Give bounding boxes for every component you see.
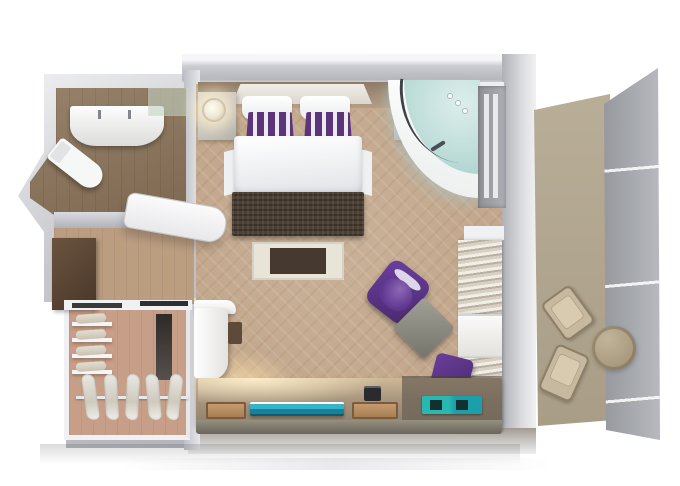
chaise-pad: [228, 322, 242, 344]
patio-chair-pad: [549, 294, 585, 331]
telephone: [364, 386, 381, 401]
teal-magazines: [422, 396, 482, 414]
clothes-hanger: [125, 374, 140, 421]
wall-sconce-lamp: [202, 98, 226, 122]
linen-stack: [458, 240, 502, 314]
closet-rail-bar: [140, 301, 188, 306]
console-front-edge: [196, 420, 502, 434]
chaise-seat: [194, 308, 228, 380]
door-panel-stripe: [484, 94, 489, 198]
mirror-panel: [156, 314, 172, 380]
shower-glass: [148, 88, 188, 116]
folded-clothes: [76, 329, 107, 340]
linen-shelf-top: [464, 226, 504, 240]
closet-rail-bar: [72, 303, 122, 308]
balcony-glass-railing: [596, 58, 664, 450]
door-panel-stripe: [493, 94, 498, 198]
magazine-print: [430, 400, 442, 410]
closet-shelf: [72, 354, 112, 358]
faucet-icon: [128, 110, 131, 119]
closet-shelf: [72, 322, 112, 326]
bedroom-right-wall: [502, 54, 536, 450]
tub-jet: [456, 101, 460, 105]
magazine-print: [456, 400, 468, 410]
tv-panel: [250, 402, 344, 416]
wood-tray: [352, 402, 398, 419]
round-patio-table: [592, 326, 636, 370]
foot-rug-center: [270, 248, 326, 274]
wood-tray: [206, 402, 246, 419]
floorplan-stage: [0, 0, 680, 486]
folded-clothes: [76, 345, 107, 356]
closet-shelf: [72, 338, 112, 342]
patio-chair-pad: [549, 353, 582, 388]
tub-jet: [463, 109, 467, 113]
tub-jet: [448, 94, 452, 98]
faucet-icon: [98, 110, 101, 119]
bed-duvet: [234, 136, 362, 196]
white-towel-shelf: [458, 314, 502, 358]
closet-shelf: [72, 370, 112, 374]
folded-clothes: [76, 313, 107, 324]
bedroom-top-wall: [182, 54, 534, 84]
balcony-door: [478, 86, 506, 208]
ground-shadow: [120, 458, 550, 470]
folded-clothes: [76, 361, 107, 372]
clothes-hanger: [104, 374, 119, 421]
foot-of-bed-bench: [232, 192, 364, 236]
